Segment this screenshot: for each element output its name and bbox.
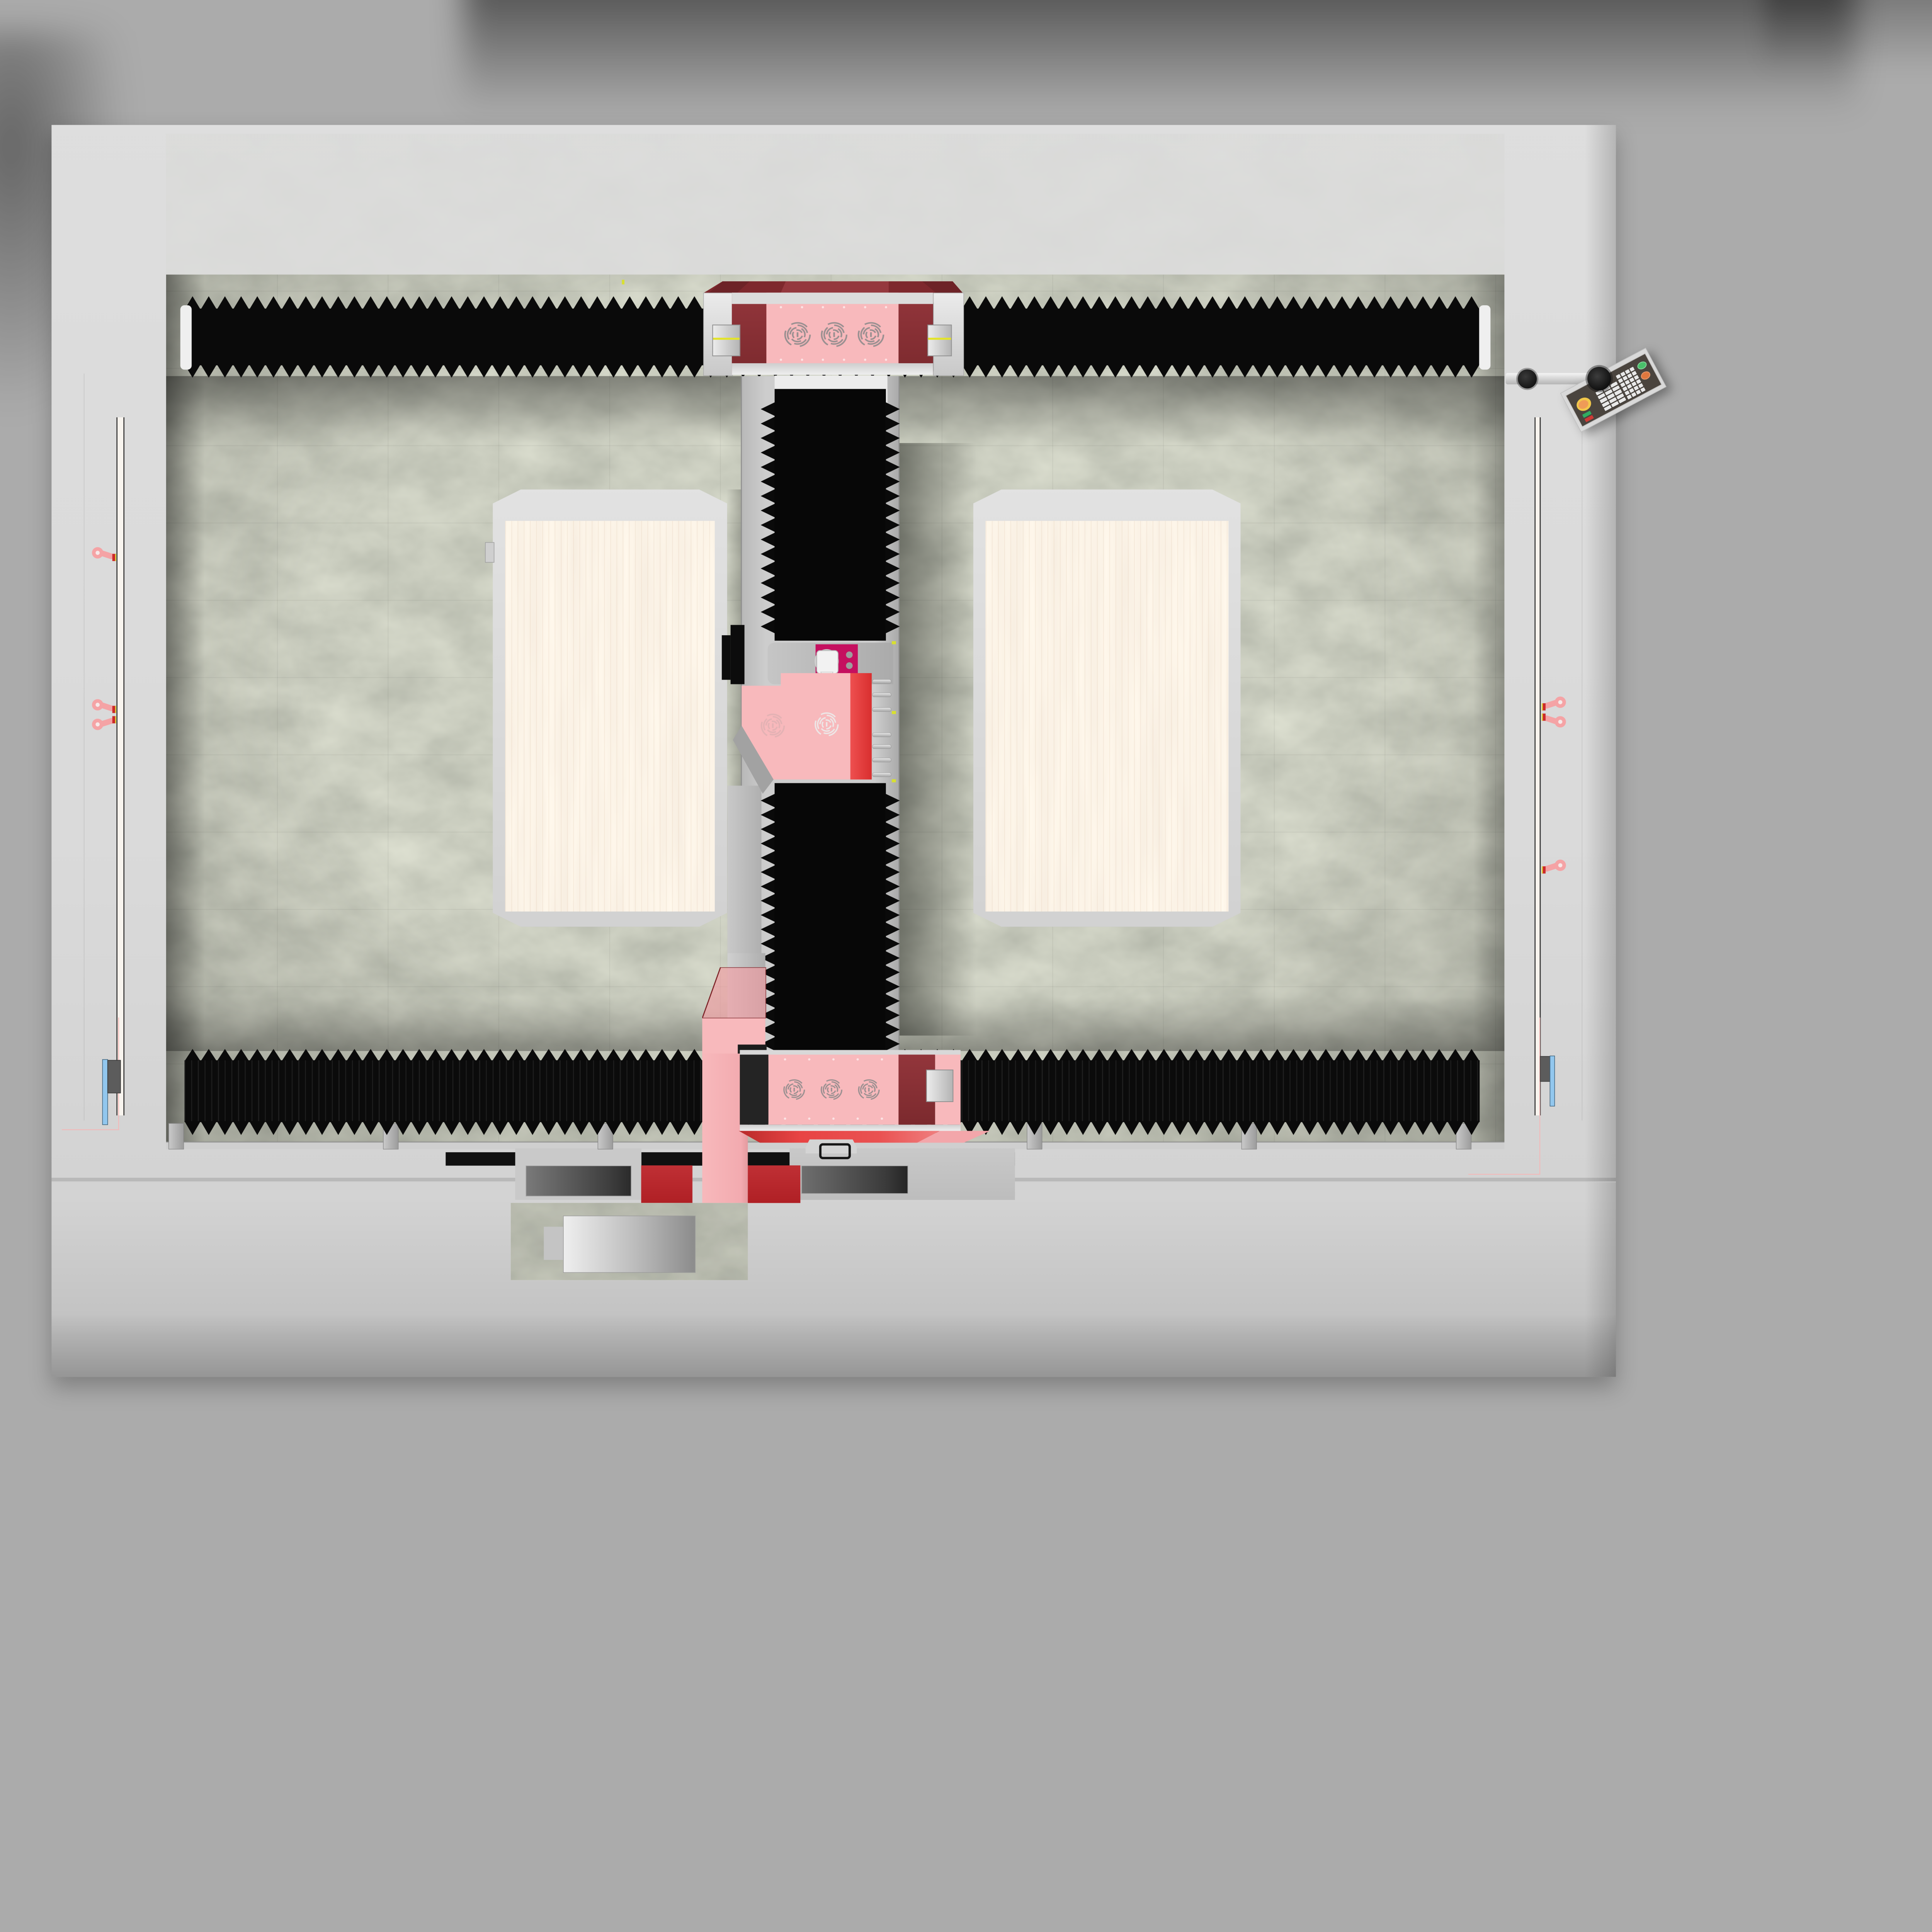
clamp-yellow-line [928,338,951,340]
z-fan-grille-faint [760,713,786,739]
bottom-carriage-bottom-strip [740,1125,961,1131]
z-fan-grille [814,711,840,737]
bottom-fan-grille [782,1078,806,1100]
top-carriage-clamp-right [927,325,952,356]
guide-block [872,772,891,777]
guide-block [872,707,891,712]
screw-dot [832,1117,835,1120]
guide-block [872,733,891,737]
screw-dot [885,306,887,308]
work-table-right[interactable] [973,490,1241,927]
top-bellows-end-cap-right [1479,305,1490,370]
lower-vbellows-teeth-right [885,793,900,1051]
rail-black-block-small [722,635,731,680]
screw-dot [822,359,824,361]
floor-seam-right [1582,374,1582,1121]
bottom-carriage-dark-panel [740,1054,769,1124]
screw-dot [864,306,866,308]
elbow-glass-cover [702,967,766,1018]
upper-vertical-bellows [775,389,886,641]
top-fan-grille [820,321,848,348]
screw-dot [780,359,782,361]
construction-line-pink [1468,1174,1540,1175]
pendant-key[interactable] [1636,389,1641,395]
screw-dot [864,359,866,361]
top-fan-grille [857,321,885,348]
cable-bail-wire [819,1143,851,1159]
right-cable-channel [801,1166,908,1194]
screw-dot [780,306,782,308]
bottom-carriage-clamp [926,1070,954,1102]
screw-dot [843,359,845,361]
top-carriage-top-strip [732,293,933,304]
screw-dots-top [770,306,896,308]
screw-dot [808,1117,810,1120]
guide-block [872,758,891,762]
bottom-fan-grille [857,1078,881,1100]
slab-side-tab [544,1227,563,1260]
red-block-left [641,1165,692,1203]
pendant-arm-joint [1518,369,1537,388]
work-table-left[interactable] [493,490,727,927]
left-cable-channel [526,1166,631,1196]
floor-right-edge-shade [1585,125,1616,1377]
plate-hole [846,662,852,669]
red-block-right [748,1165,800,1203]
eye-bolt [91,713,117,731]
screw-dots-top [773,1058,894,1061]
plate-hole [846,651,852,658]
screw-dot [857,1058,859,1061]
screw-dot [881,1058,883,1061]
top-fan-grille [783,321,811,348]
floor-ghost-texture [166,134,1504,275]
screw-dot [832,1058,835,1061]
screw-dot [784,1117,786,1120]
screw-dot [801,359,803,361]
eye-bolt [1541,711,1567,729]
hold-button[interactable] [1639,370,1652,381]
ambient-shadow-topright [1765,0,1932,72]
rail-tick-yellow [892,779,896,782]
construction-line-pink [62,1129,119,1130]
screw-dot [857,1117,859,1120]
top-carriage-roof [703,281,963,293]
bed-support-post [168,1123,184,1150]
spindle-motor[interactable] [816,650,838,674]
pendant-key[interactable] [1640,387,1646,392]
corner-marker-blue-right [1550,1056,1555,1106]
guide-block [872,745,891,749]
screw-dot [881,1117,883,1120]
guide-block [872,693,891,697]
rail-tick-yellow [892,641,896,644]
bottom-fan-grille [820,1078,843,1100]
table-wood-grain-overlay [505,521,714,912]
table-wood-grain-overlay [985,521,1228,912]
ambient-shadow-top [464,0,1855,113]
top-bellows-end-cap-left [180,305,192,370]
screw-dot [843,306,845,308]
floor-front-face [51,1314,1616,1377]
bottom-carriage-red-skirt [739,1131,990,1143]
screw-dots-bottom [773,1117,894,1120]
screw-dot [784,1058,786,1061]
z-carriage-red-stripe [850,673,872,779]
screw-dot [822,306,824,308]
screw-dot [801,306,803,308]
upper-vbellows-teeth-left [761,402,776,634]
table-side-tab-left [485,542,494,563]
pendant-key[interactable] [1627,395,1632,400]
upper-vbellows-teeth-right [885,402,900,634]
screw-dot [808,1058,810,1061]
start-button[interactable] [1636,360,1648,371]
corner-marker-grey-left [107,1060,121,1093]
floor-seam-left [84,374,85,1121]
guide-block [872,679,891,684]
render-viewport [0,0,1932,1417]
pendant-key[interactable] [1631,392,1637,397]
pendant-arm-joint-panel [1587,367,1611,390]
screw-dot [885,359,887,361]
clamp-yellow-line [713,338,740,340]
top-carriage-clamp-left [712,325,740,356]
construction-line-pink [1539,1017,1540,1175]
eye-bolt [1541,859,1567,877]
top-carriage-bottom-strip [732,363,933,375]
screw-dots-bottom [770,359,896,361]
right-guide-rail [1534,417,1541,1116]
rail-tick-yellow [892,711,896,714]
emergency-stop-button[interactable] [1574,395,1594,413]
eye-bolt [91,546,117,564]
lower-vertical-bellows [775,783,886,1060]
slab-metal-insert [563,1216,696,1273]
emergency-stop-inner [1577,398,1590,410]
left-guide-rail [116,417,124,1116]
datum-tick-yellow [622,280,624,284]
